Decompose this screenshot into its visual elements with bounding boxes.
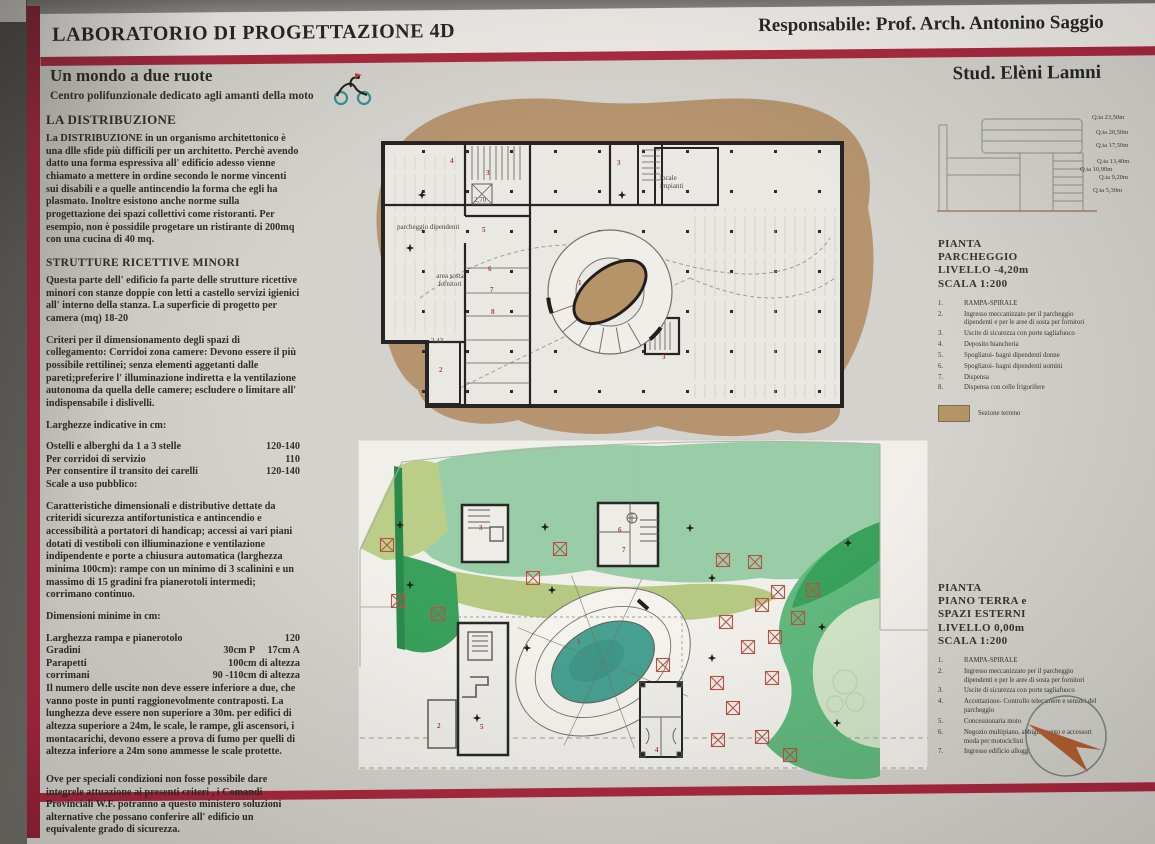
label-parcheggio-dipendenti: parcheggio dipendenti (397, 223, 509, 231)
level-label: Q.ta 20,50m (1096, 129, 1128, 136)
legend-title-line: SPAZI ESTERNI (938, 608, 1133, 621)
room-number: 3 (479, 524, 483, 532)
label-area-sosta-fornitori: area sosta fornitori (424, 272, 476, 288)
legend-item-number: 1. (938, 657, 964, 666)
north-arrow-compass (1016, 686, 1116, 786)
room-number: 4 (450, 157, 454, 165)
legend-item-text: Dispensa con celle frigorifere (964, 384, 1102, 393)
spec-label: Ostelli e alberghi da 1 a 3 stelle (46, 441, 181, 454)
legend-item-number: 6. (938, 363, 964, 372)
spec-label: Larghezza rampa e pianerotolo (46, 633, 182, 646)
legend-item-number: 3. (938, 687, 964, 696)
parcheggio-plan-drawing (360, 88, 880, 448)
legend-item-text: Spogliatoi- bagni dipendenti uomini (964, 363, 1102, 372)
level-label: Q.ta 17,50m (1096, 142, 1128, 149)
level-label: Q.ta 5,30m (1093, 187, 1122, 194)
legend-item-number: 6. (938, 729, 964, 747)
legend-item-number: 8. (938, 384, 964, 393)
legend-title-line: LIVELLO -4,20m (938, 264, 1133, 277)
room-number: 1 (578, 279, 582, 287)
legend-item-number: 5. (938, 718, 964, 727)
left-text-column: LA DISTRIBUZIONE La DISTRIBUZIONE in un … (46, 112, 300, 844)
room-number: 3 (662, 353, 666, 361)
presentation-board-photo: LABORATORIO DI PROGETTAZIONE 4D Responsa… (0, 0, 1155, 844)
spec-row: Parapetti 100cm di altezza (46, 658, 300, 671)
legend-item-number: 7. (938, 374, 964, 383)
room-number: 6 (488, 265, 492, 273)
responsible-title: Responsabile: Prof. Arch. Antonino Saggi… (758, 12, 1104, 37)
spec-row: Gradini 30cm P 17cm A (46, 645, 300, 658)
legend-item-number: 5. (938, 352, 964, 361)
room-number: 1 (577, 638, 581, 646)
photo-corner-patch (0, 0, 26, 22)
legend-item-text: RAMPA-SPIRALE (964, 300, 1102, 309)
spec-value: 100cm di altezza (228, 658, 300, 671)
student-name: Stud. Elèni Lamni (953, 62, 1102, 85)
room-number: 4 (655, 746, 659, 754)
section-heading-distribuzione: LA DISTRIBUZIONE (46, 112, 300, 128)
distribuzione-body: La DISTRIBUZIONE in un organismo archite… (46, 133, 300, 247)
project-subtitle: Centro polifunzionale dedicato agli aman… (50, 90, 314, 102)
legend-item-text: Deposito biancheria (964, 341, 1102, 350)
spec-row: Per consentire il transito dei carelli 1… (46, 466, 300, 479)
spec-row: corrimani 90 -110cm di altezza (46, 670, 300, 683)
legend-items: 1.RAMPA-SPIRALE 2.Ingresso meccanizzato … (938, 300, 1133, 393)
spec-value: 90 -110cm di altezza (213, 670, 300, 683)
criteri-body: Criteri per il dimensionamento degli spa… (46, 335, 300, 411)
scale-body: Caratteristiche dimensionali e distribut… (46, 501, 300, 602)
larghezze-heading: Larghezze indicative in cm: (46, 420, 300, 433)
spec-value: 110 (285, 454, 300, 467)
room-number: 5 (480, 723, 484, 731)
board-left-red-stripe (27, 6, 40, 838)
spec-label: Gradini (46, 645, 81, 658)
strutture-body: Questa parte dell' edificio fa parte del… (46, 275, 300, 326)
legend-item-text: RAMPA-SPIRALE (964, 657, 1102, 666)
spec-label: Per consentire il transito dei carelli (46, 466, 198, 479)
legend-item-number: 4. (938, 698, 964, 716)
room-number: 7 (490, 286, 494, 294)
legend-title-line: PARCHEGGIO (938, 251, 1133, 264)
legend-title-line: SCALA 1:200 (938, 635, 1133, 648)
dimension-label: 2,43 (431, 337, 443, 345)
photo-left-edge (0, 0, 27, 844)
terrain-swatch-row: Sezione terreno (938, 405, 1133, 422)
legend-item-text: Uscite di sicurezza con porte tagliafuoc… (964, 330, 1102, 339)
legend-title-line: PIANTA (938, 582, 1133, 595)
spec-label: Per corridoi di servizio (46, 454, 146, 467)
spec-label: Parapetti (46, 658, 87, 671)
legend-item-number: 3. (938, 330, 964, 339)
parking-stalls (690, 208, 838, 398)
level-label: Q.ta 10,90m (1080, 166, 1112, 173)
legend-parcheggio: PIANTA PARCHEGGIO LIVELLO -4,20m SCALA 1… (938, 238, 1133, 422)
lab-title: LABORATORIO DI PROGETTAZIONE 4D (52, 20, 455, 47)
legend-item-number: 2. (938, 311, 964, 329)
section-heading-strutture: STRUTTURE RICETTIVE MINORI (46, 256, 300, 270)
legend-item-text: Spogliatoi- bagni dipendenti donne (964, 352, 1102, 361)
piano-terra-plan-drawing (340, 432, 940, 792)
compass-circle (1026, 696, 1106, 776)
uscite-body: Il numero delle uscite non deve essere i… (46, 683, 300, 759)
legend-title-line: PIANTA (938, 238, 1133, 251)
spec-value: 120-140 (266, 466, 300, 479)
room-number: 3 (486, 169, 490, 177)
spec-row: Ostelli e alberghi da 1 a 3 stelle 120-1… (46, 441, 300, 454)
spec-label: corrimani (46, 670, 90, 683)
parking-stalls (390, 156, 462, 334)
legend-item-number: 4. (938, 341, 964, 350)
legend-item-number: 1. (938, 300, 964, 309)
legend-item-text: Ingresso meccanizzato per il parcheggio … (964, 311, 1102, 329)
project-title: Un mondo a due ruote (50, 66, 212, 86)
room-number: 2 (437, 722, 441, 730)
scale-heading: Scale a uso pubblico: (46, 479, 300, 492)
legend-item-text: Dispensa (964, 374, 1102, 383)
spec-row: Per corridoi di servizio 110 (46, 454, 300, 467)
level-label: Q.ta 9,20m (1099, 174, 1128, 181)
spec-value: 120 (285, 633, 300, 646)
room-number: 3 (617, 159, 621, 167)
room-number: 8 (491, 308, 495, 316)
room-number: 7 (622, 546, 626, 554)
room-number: 6 (618, 526, 622, 534)
terrain-swatch-label: Sezione terreno (978, 410, 1020, 417)
spec-value: 30cm P 17cm A (223, 645, 300, 658)
legend-item-text: Ingresso meccanizzato per il parcheggio … (964, 668, 1102, 686)
legend-item-number: 2. (938, 668, 964, 686)
level-label: Q.ta 23,50m (1092, 114, 1124, 121)
terrain-color-swatch (938, 405, 970, 422)
dimensioni-heading: Dimensioni minime in cm: (46, 611, 300, 624)
spec-row: Larghezza rampa e pianerotolo 120 (46, 633, 300, 646)
room-number: 2 (439, 366, 443, 374)
spec-value: 120-140 (266, 441, 300, 454)
legend-item-number: 7. (938, 748, 964, 757)
legend-title-line: LIVELLO 0,00m (938, 622, 1133, 635)
legend-title-line: PIANO TERRA e (938, 595, 1133, 608)
legend-title-line: SCALA 1:200 (938, 278, 1133, 291)
label-locale-impianti: locale impianti (660, 174, 706, 190)
level-label: Q.ta 13,40m (1097, 158, 1129, 165)
ove-body: Ove per speciali condizioni non fosse po… (46, 774, 300, 837)
dimension-label: 2,70 (474, 196, 486, 204)
